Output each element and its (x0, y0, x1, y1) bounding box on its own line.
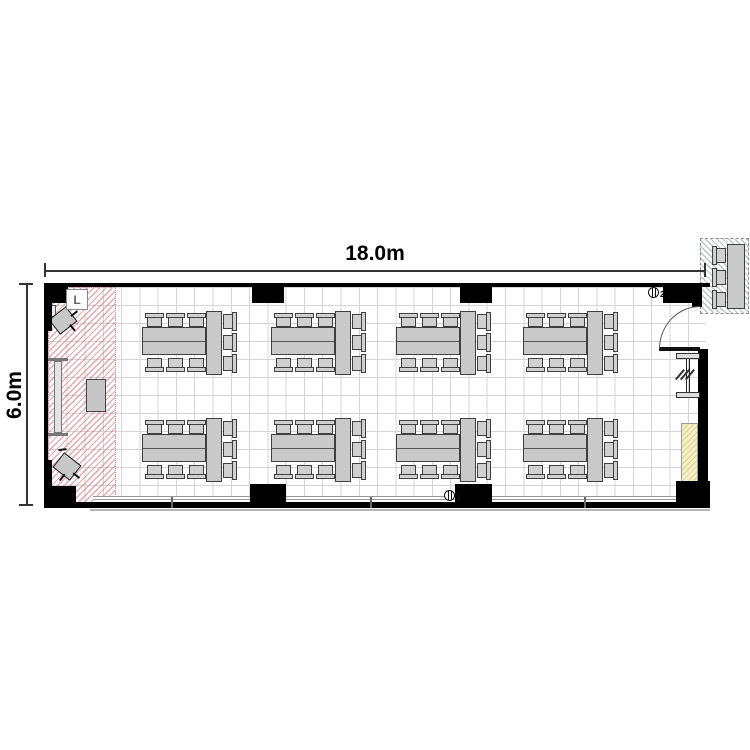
chair-seat (297, 317, 312, 327)
chair (526, 313, 545, 327)
dimension-tick (19, 504, 33, 506)
chair-seat (297, 358, 312, 368)
table (142, 434, 206, 462)
chair-seat (528, 465, 543, 475)
chair (187, 420, 206, 434)
chair-seat (189, 465, 204, 475)
yellow-fixture (681, 423, 698, 488)
chair-seat (276, 317, 291, 327)
dimension-tick (704, 263, 706, 277)
chair-seat (223, 463, 233, 478)
wall-segment (44, 502, 710, 508)
chair (441, 420, 460, 434)
chair-seat (549, 424, 564, 434)
chair-seat (443, 424, 458, 434)
chair-seat (318, 358, 333, 368)
chair (399, 358, 418, 372)
table (587, 418, 603, 482)
chair-seat (168, 358, 183, 368)
outlet-pin (451, 491, 452, 500)
wall-segment (455, 484, 492, 507)
table (206, 418, 222, 482)
chair (223, 354, 237, 373)
outlet-pin (448, 491, 449, 500)
chair-seat (528, 424, 543, 434)
chair (604, 354, 618, 373)
chair-seat (422, 424, 437, 434)
table-group (396, 311, 492, 377)
chair (399, 465, 418, 479)
chair (420, 420, 439, 434)
chair-seat (604, 314, 614, 329)
chair (145, 313, 164, 327)
light-label-box: L (66, 289, 88, 310)
chair-seat (477, 356, 487, 371)
chair (352, 419, 366, 438)
whiteboard (54, 361, 62, 433)
chair (145, 420, 164, 434)
chair-seat (352, 356, 362, 371)
chair-seat (297, 424, 312, 434)
chair-seat (223, 442, 233, 457)
chair-seat (443, 465, 458, 475)
chair-seat (168, 465, 183, 475)
width-dimension-label: 18.0m (330, 242, 420, 266)
chair (145, 358, 164, 372)
width-dimension-line (44, 270, 706, 272)
chair (316, 313, 335, 327)
chair-seat (147, 424, 162, 434)
chair-seat (223, 356, 233, 371)
chair (712, 268, 726, 287)
floor-plan-canvas: L22 18.0m 6.0m (0, 0, 750, 750)
chair (223, 419, 237, 438)
chair (223, 461, 237, 480)
chair-seat (570, 358, 585, 368)
table (271, 327, 335, 355)
chair (568, 358, 587, 372)
chair (526, 420, 545, 434)
chair-seat (401, 424, 416, 434)
chair-seat (604, 463, 614, 478)
table (335, 311, 351, 375)
chair-seat (443, 317, 458, 327)
outlet-count-label: 2 (660, 290, 664, 299)
window-mullion-tick (171, 497, 173, 508)
chair-seat (570, 465, 585, 475)
window-mullion-tick (370, 497, 372, 508)
outlet-symbol: 2 (444, 490, 455, 501)
chair-seat (422, 465, 437, 475)
chair-seat (477, 335, 487, 350)
chair-seat (549, 358, 564, 368)
table-group (271, 418, 367, 484)
chair (352, 312, 366, 331)
chair-seat (477, 314, 487, 329)
wall-segment (44, 283, 710, 287)
chair-seat (223, 314, 233, 329)
dimension-tick (44, 263, 46, 277)
chair-seat (276, 424, 291, 434)
chair (441, 465, 460, 479)
chair (604, 333, 618, 352)
chair-seat (189, 317, 204, 327)
chair-seat (604, 421, 614, 436)
chair-seat (604, 335, 614, 350)
table (206, 311, 222, 375)
table (335, 418, 351, 482)
table-group (523, 311, 619, 377)
chair (295, 465, 314, 479)
chair (316, 465, 335, 479)
chair (568, 313, 587, 327)
chair (477, 440, 491, 459)
chair (295, 358, 314, 372)
chair (166, 358, 185, 372)
chair-seat (352, 314, 362, 329)
chair-seat (223, 421, 233, 436)
chair (316, 358, 335, 372)
chair-seat (401, 465, 416, 475)
table-group (142, 311, 238, 377)
chair-seat (147, 317, 162, 327)
chair (166, 465, 185, 479)
chair (145, 465, 164, 479)
chair (712, 290, 726, 309)
chair-seat (570, 424, 585, 434)
chair (568, 465, 587, 479)
chair-seat (716, 292, 726, 307)
chair-seat (352, 335, 362, 350)
chair-seat (528, 317, 543, 327)
chair-seat (528, 358, 543, 368)
chair (399, 420, 418, 434)
wall-segment (44, 283, 52, 331)
chair-seat (168, 317, 183, 327)
table (460, 311, 476, 375)
table (587, 311, 603, 375)
table-group (271, 311, 367, 377)
chair-seat (401, 317, 416, 327)
chair (166, 420, 185, 434)
outlet-symbol: 2 (648, 287, 659, 298)
chair-seat (549, 317, 564, 327)
table (523, 434, 587, 462)
chair (526, 465, 545, 479)
chair (568, 420, 587, 434)
table-group (142, 418, 238, 484)
window-bar (676, 392, 700, 398)
table (142, 327, 206, 355)
wall-segment (250, 484, 286, 507)
chair (187, 313, 206, 327)
chair-seat (168, 424, 183, 434)
chair (604, 461, 618, 480)
chair-seat (318, 317, 333, 327)
outlet-pin (655, 288, 656, 297)
table (460, 418, 476, 482)
outlet-count-label: 2 (456, 493, 460, 502)
chair (399, 313, 418, 327)
chair (316, 420, 335, 434)
chair (477, 354, 491, 373)
chair-seat (604, 356, 614, 371)
chair (274, 313, 293, 327)
podium (86, 379, 106, 412)
table (396, 327, 460, 355)
window-mullion-tick (584, 497, 586, 508)
chair (295, 313, 314, 327)
chair (352, 354, 366, 373)
chair-seat (147, 358, 162, 368)
table-group (523, 418, 619, 484)
chair (477, 461, 491, 480)
chair-seat (477, 421, 487, 436)
table-group (396, 418, 492, 484)
table (523, 327, 587, 355)
chair-seat (716, 270, 726, 285)
chair (274, 420, 293, 434)
chair-seat (276, 465, 291, 475)
chair (187, 465, 206, 479)
chair (441, 313, 460, 327)
chair-seat (570, 317, 585, 327)
outlet-pin (652, 288, 653, 297)
chair-seat (604, 442, 614, 457)
wall-segment (44, 460, 52, 507)
chair-seat (189, 424, 204, 434)
chair-seat (443, 358, 458, 368)
chair-seat (401, 358, 416, 368)
chair-seat (318, 465, 333, 475)
chair-seat (223, 335, 233, 350)
chair (604, 440, 618, 459)
chair (274, 358, 293, 372)
chair (477, 419, 491, 438)
chair-seat (352, 442, 362, 457)
chair-seat (716, 248, 726, 263)
exterior-ground-line (90, 509, 710, 511)
wall-segment (663, 283, 700, 303)
chair (420, 313, 439, 327)
chair (420, 358, 439, 372)
chair (352, 461, 366, 480)
chair-seat (276, 358, 291, 368)
chair-seat (422, 317, 437, 327)
chair (604, 312, 618, 331)
chair-seat (297, 465, 312, 475)
chair (547, 358, 566, 372)
chair (223, 440, 237, 459)
chair (274, 465, 293, 479)
chair (604, 419, 618, 438)
height-dimension-label: 6.0m (3, 358, 27, 432)
wall-segment (676, 481, 710, 507)
chair-seat (477, 463, 487, 478)
chair (477, 333, 491, 352)
chair (352, 333, 366, 352)
wall-segment (460, 283, 492, 303)
table (396, 434, 460, 462)
table (271, 434, 335, 462)
wall-segment (252, 283, 284, 303)
chair (547, 465, 566, 479)
dimension-tick (19, 283, 33, 285)
chair-seat (352, 463, 362, 478)
chair (526, 358, 545, 372)
chair-seat (147, 465, 162, 475)
external-table (727, 244, 745, 309)
chair-seat (318, 424, 333, 434)
chair (441, 358, 460, 372)
chair (166, 313, 185, 327)
chair-seat (549, 465, 564, 475)
whiteboard-cap (46, 433, 68, 436)
chair (223, 312, 237, 331)
chair (547, 313, 566, 327)
chair-seat (189, 358, 204, 368)
chair (477, 312, 491, 331)
chair (223, 333, 237, 352)
chair (712, 246, 726, 265)
chair-seat (352, 421, 362, 436)
chair (352, 440, 366, 459)
chair (187, 358, 206, 372)
chair (420, 465, 439, 479)
chair-seat (422, 358, 437, 368)
chair (547, 420, 566, 434)
chair (295, 420, 314, 434)
chair-seat (477, 442, 487, 457)
